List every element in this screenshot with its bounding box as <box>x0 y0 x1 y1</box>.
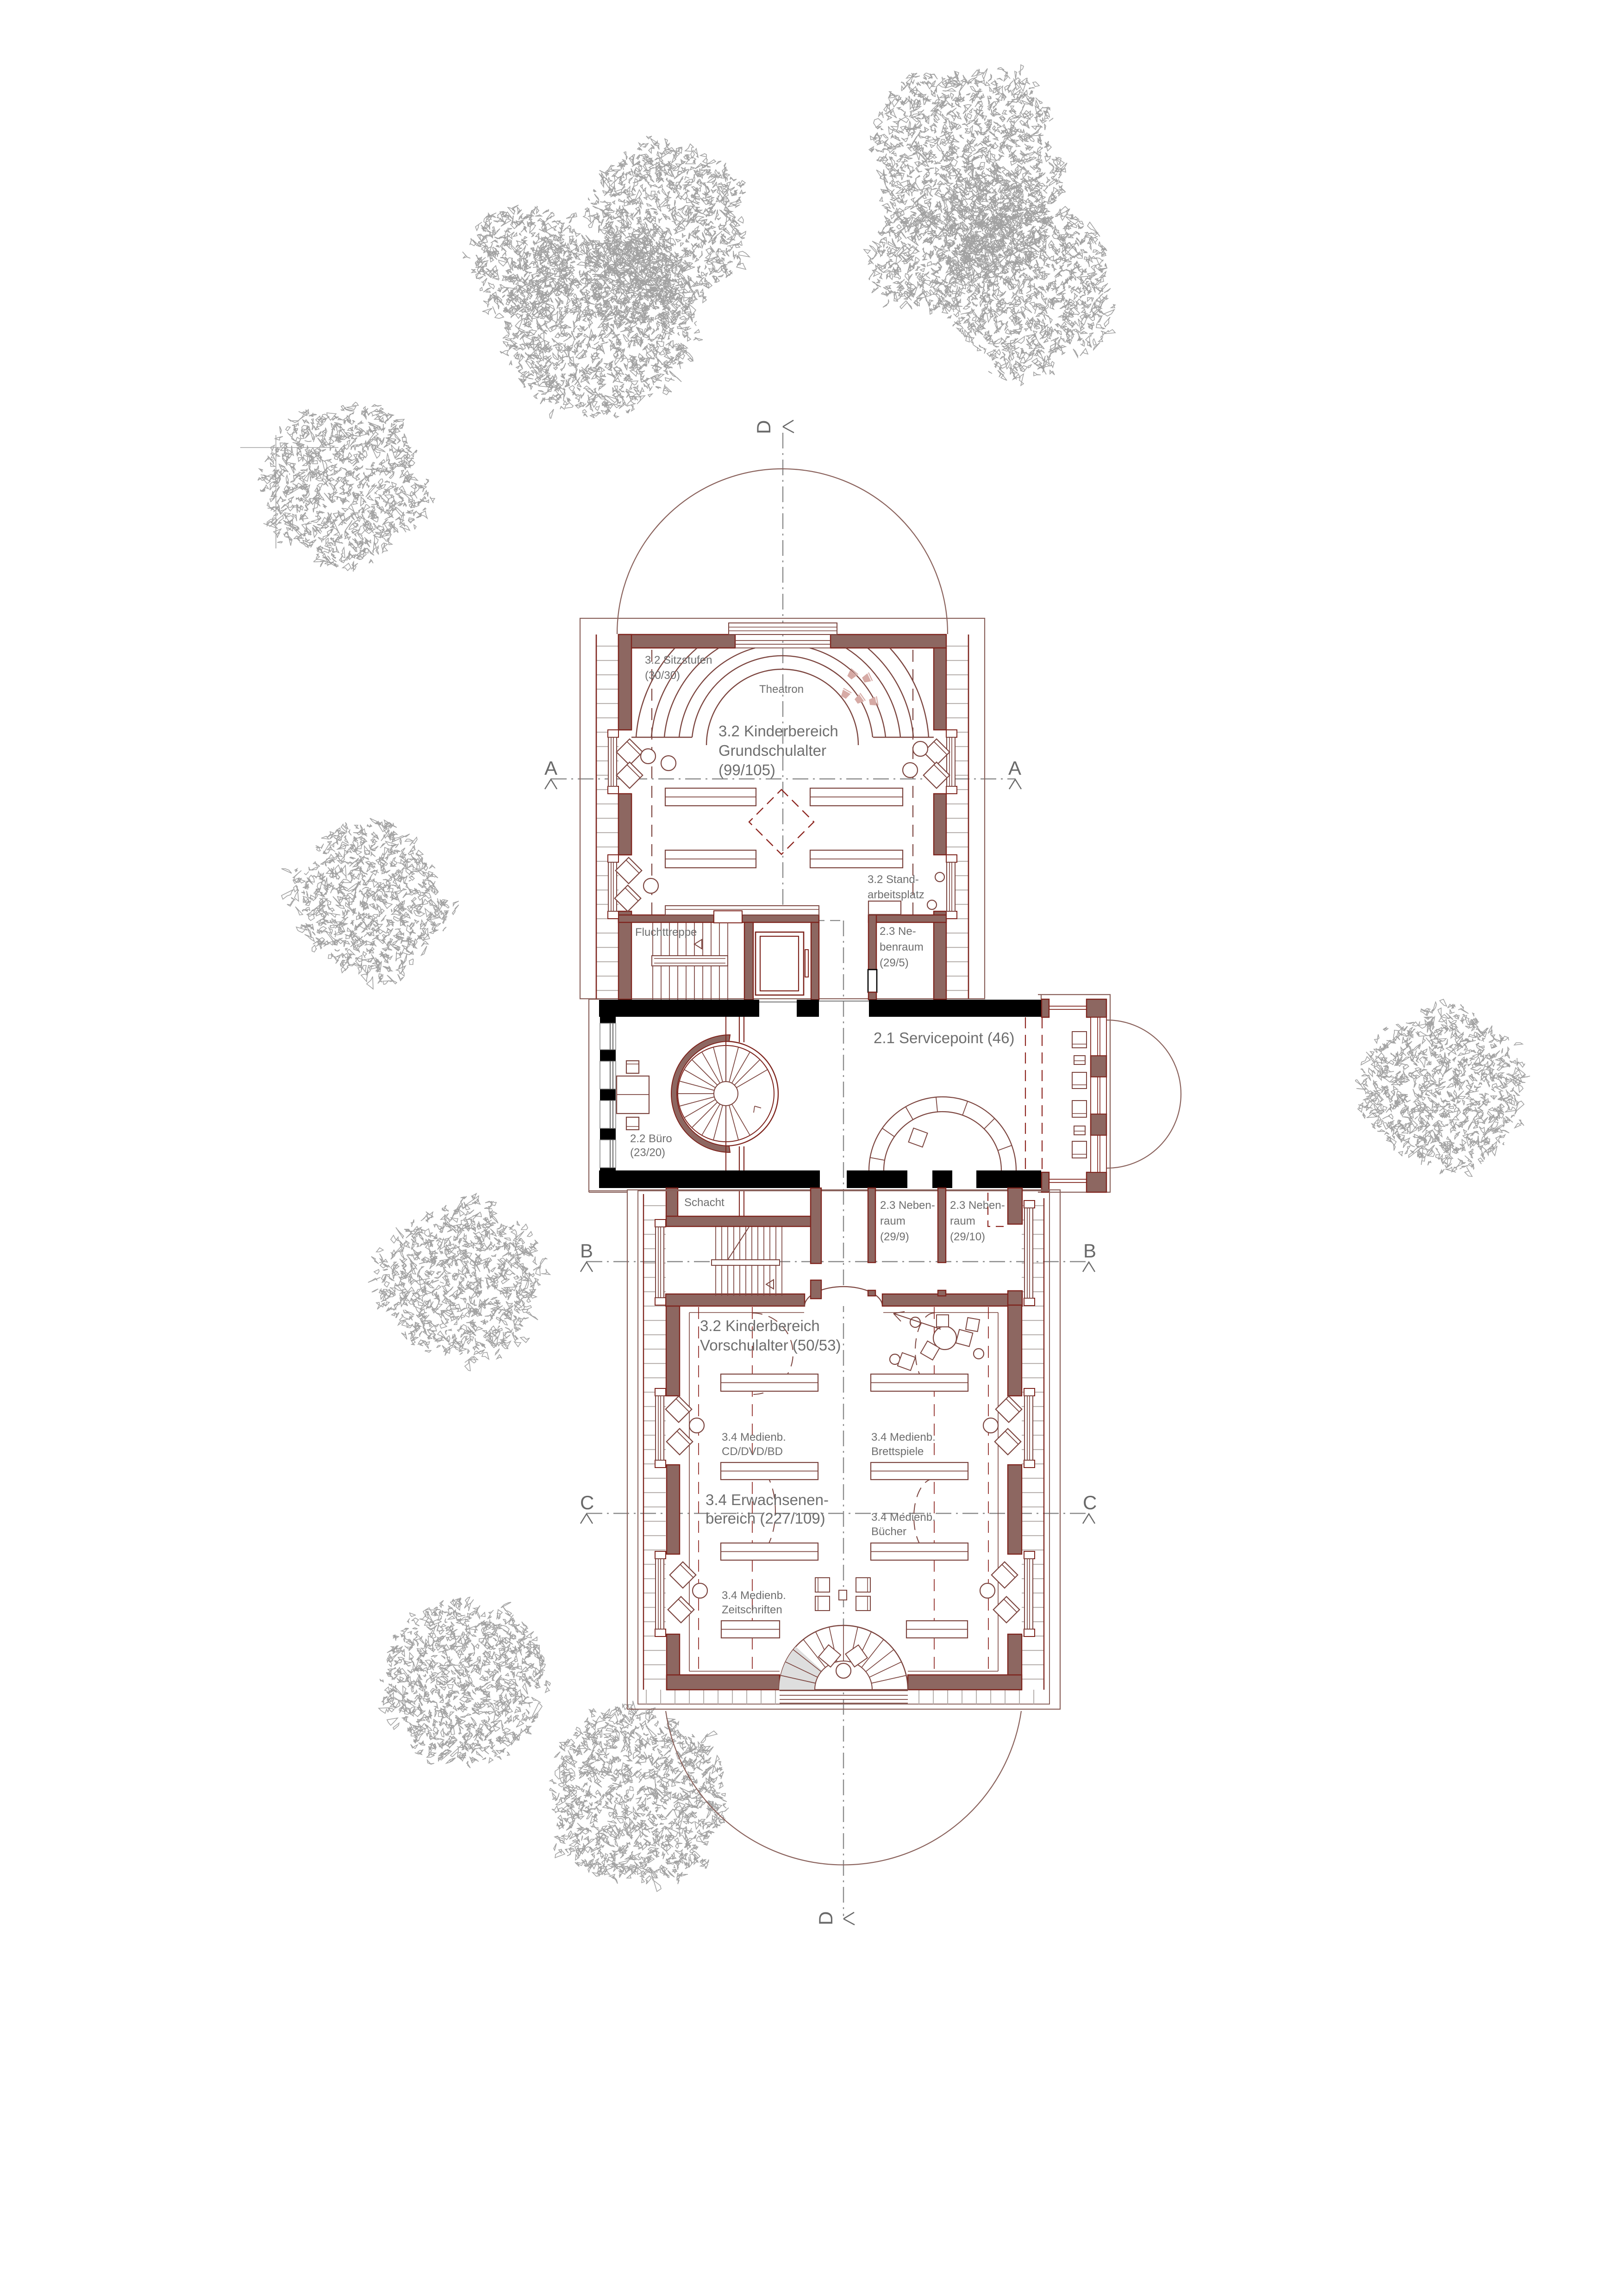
svg-text:D: D <box>815 1911 837 1925</box>
svg-text:Brettspiele: Brettspiele <box>871 1445 924 1458</box>
svg-text:C: C <box>1083 1492 1097 1513</box>
svg-text:2.3 Ne-: 2.3 Ne- <box>880 925 916 938</box>
svg-text:3.4 Medienb.: 3.4 Medienb. <box>871 1511 936 1524</box>
svg-text:2.1 Servicepoint (46): 2.1 Servicepoint (46) <box>874 1029 1015 1046</box>
svg-text:2.3 Neben-: 2.3 Neben- <box>950 1199 1005 1212</box>
svg-text:A: A <box>1008 757 1021 779</box>
svg-text:B: B <box>1083 1240 1096 1262</box>
svg-text:Zeitschriften: Zeitschriften <box>722 1604 782 1616</box>
svg-text:Fluchttreppe: Fluchttreppe <box>635 926 697 939</box>
svg-text:3.4 Medienb.: 3.4 Medienb. <box>871 1431 936 1444</box>
svg-text:raum: raum <box>880 1215 906 1227</box>
svg-text:(29/10): (29/10) <box>950 1231 985 1243</box>
svg-text:3.2 Kinderbereich: 3.2 Kinderbereich <box>718 722 838 740</box>
svg-text:(99/105): (99/105) <box>718 761 775 778</box>
svg-text:3.2 Stand-: 3.2 Stand- <box>868 873 919 886</box>
svg-text:3.4 Medienb.: 3.4 Medienb. <box>722 1589 786 1602</box>
svg-text:bereich (227/109): bereich (227/109) <box>706 1510 825 1527</box>
svg-text:benraum: benraum <box>880 941 924 953</box>
svg-text:CD/DVD/BD: CD/DVD/BD <box>722 1445 783 1458</box>
svg-text:2.2 Büro: 2.2 Büro <box>630 1132 672 1145</box>
svg-text:arbeitsplatz: arbeitsplatz <box>868 889 924 901</box>
svg-text:3.2 Kinderbereich: 3.2 Kinderbereich <box>700 1317 820 1334</box>
svg-text:A: A <box>544 757 557 779</box>
svg-text:3.4 Erwachsenen-: 3.4 Erwachsenen- <box>706 1491 829 1508</box>
svg-text:(29/9): (29/9) <box>880 1231 909 1243</box>
svg-text:3.4 Medienb.: 3.4 Medienb. <box>722 1431 786 1444</box>
svg-text:C: C <box>580 1492 594 1513</box>
svg-text:D: D <box>753 420 775 434</box>
svg-text:(23/20): (23/20) <box>630 1146 665 1159</box>
svg-text:Bücher: Bücher <box>871 1525 906 1538</box>
svg-text:(30/30): (30/30) <box>645 669 680 682</box>
svg-text:3.2 Sitzstufen: 3.2 Sitzstufen <box>645 654 712 666</box>
svg-text:Schacht: Schacht <box>684 1196 725 1209</box>
svg-text:(29/5): (29/5) <box>880 957 909 969</box>
svg-text:Grundschulalter: Grundschulalter <box>718 742 826 759</box>
svg-text:Vorschulalter (50/53): Vorschulalter (50/53) <box>700 1337 841 1354</box>
svg-text:raum: raum <box>950 1215 975 1227</box>
svg-text:2.3 Neben-: 2.3 Neben- <box>880 1199 935 1212</box>
svg-text:B: B <box>580 1240 593 1262</box>
svg-text:Theatron: Theatron <box>759 683 804 696</box>
